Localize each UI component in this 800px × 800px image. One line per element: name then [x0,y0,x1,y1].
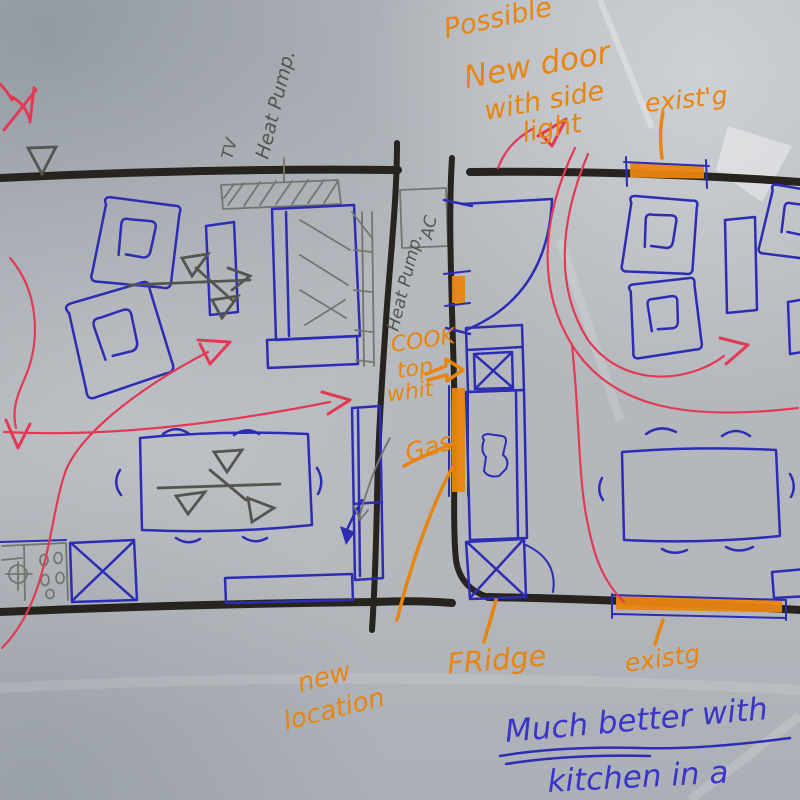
gas-wall-segment [452,388,465,492]
floor-plan-sketch: AC [0,0,800,800]
wall-opening-small [452,276,465,303]
photographed-paper-sketch: AC [0,0,800,800]
